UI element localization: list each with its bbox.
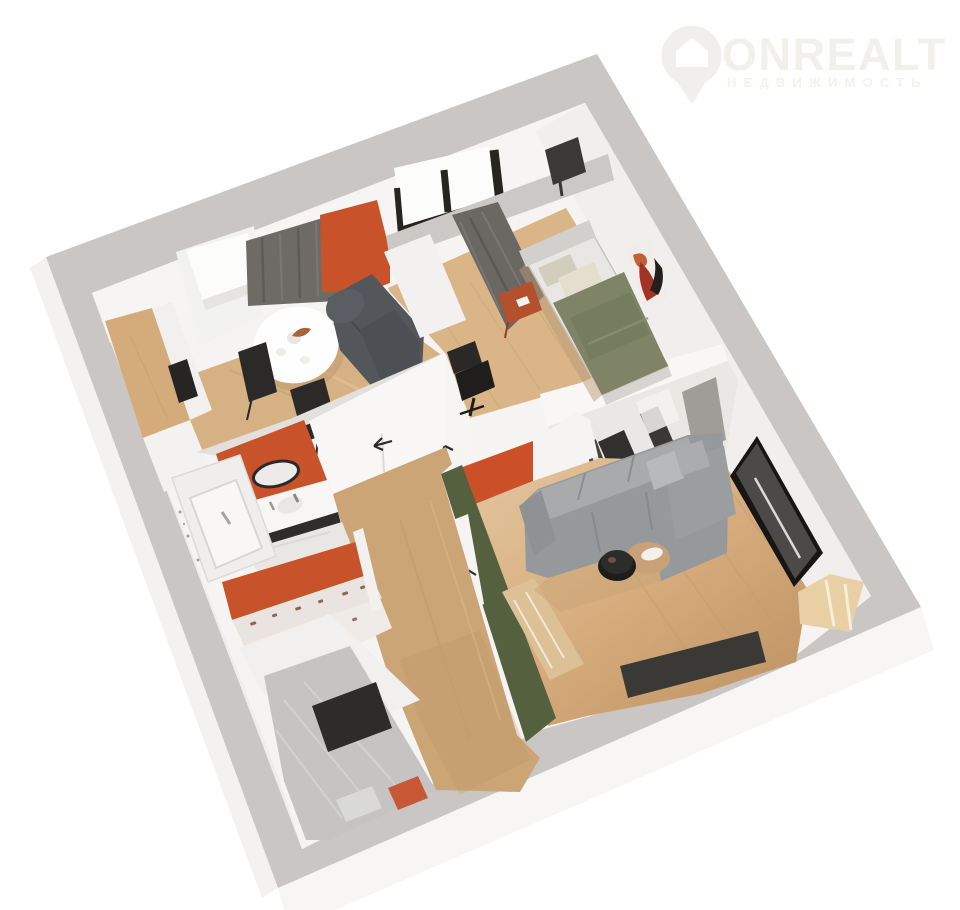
svg-text:ONREALT: ONREALT [722,29,947,80]
svg-text:НЕДВИЖИМОСТЬ: НЕДВИЖИМОСТЬ [727,75,928,90]
